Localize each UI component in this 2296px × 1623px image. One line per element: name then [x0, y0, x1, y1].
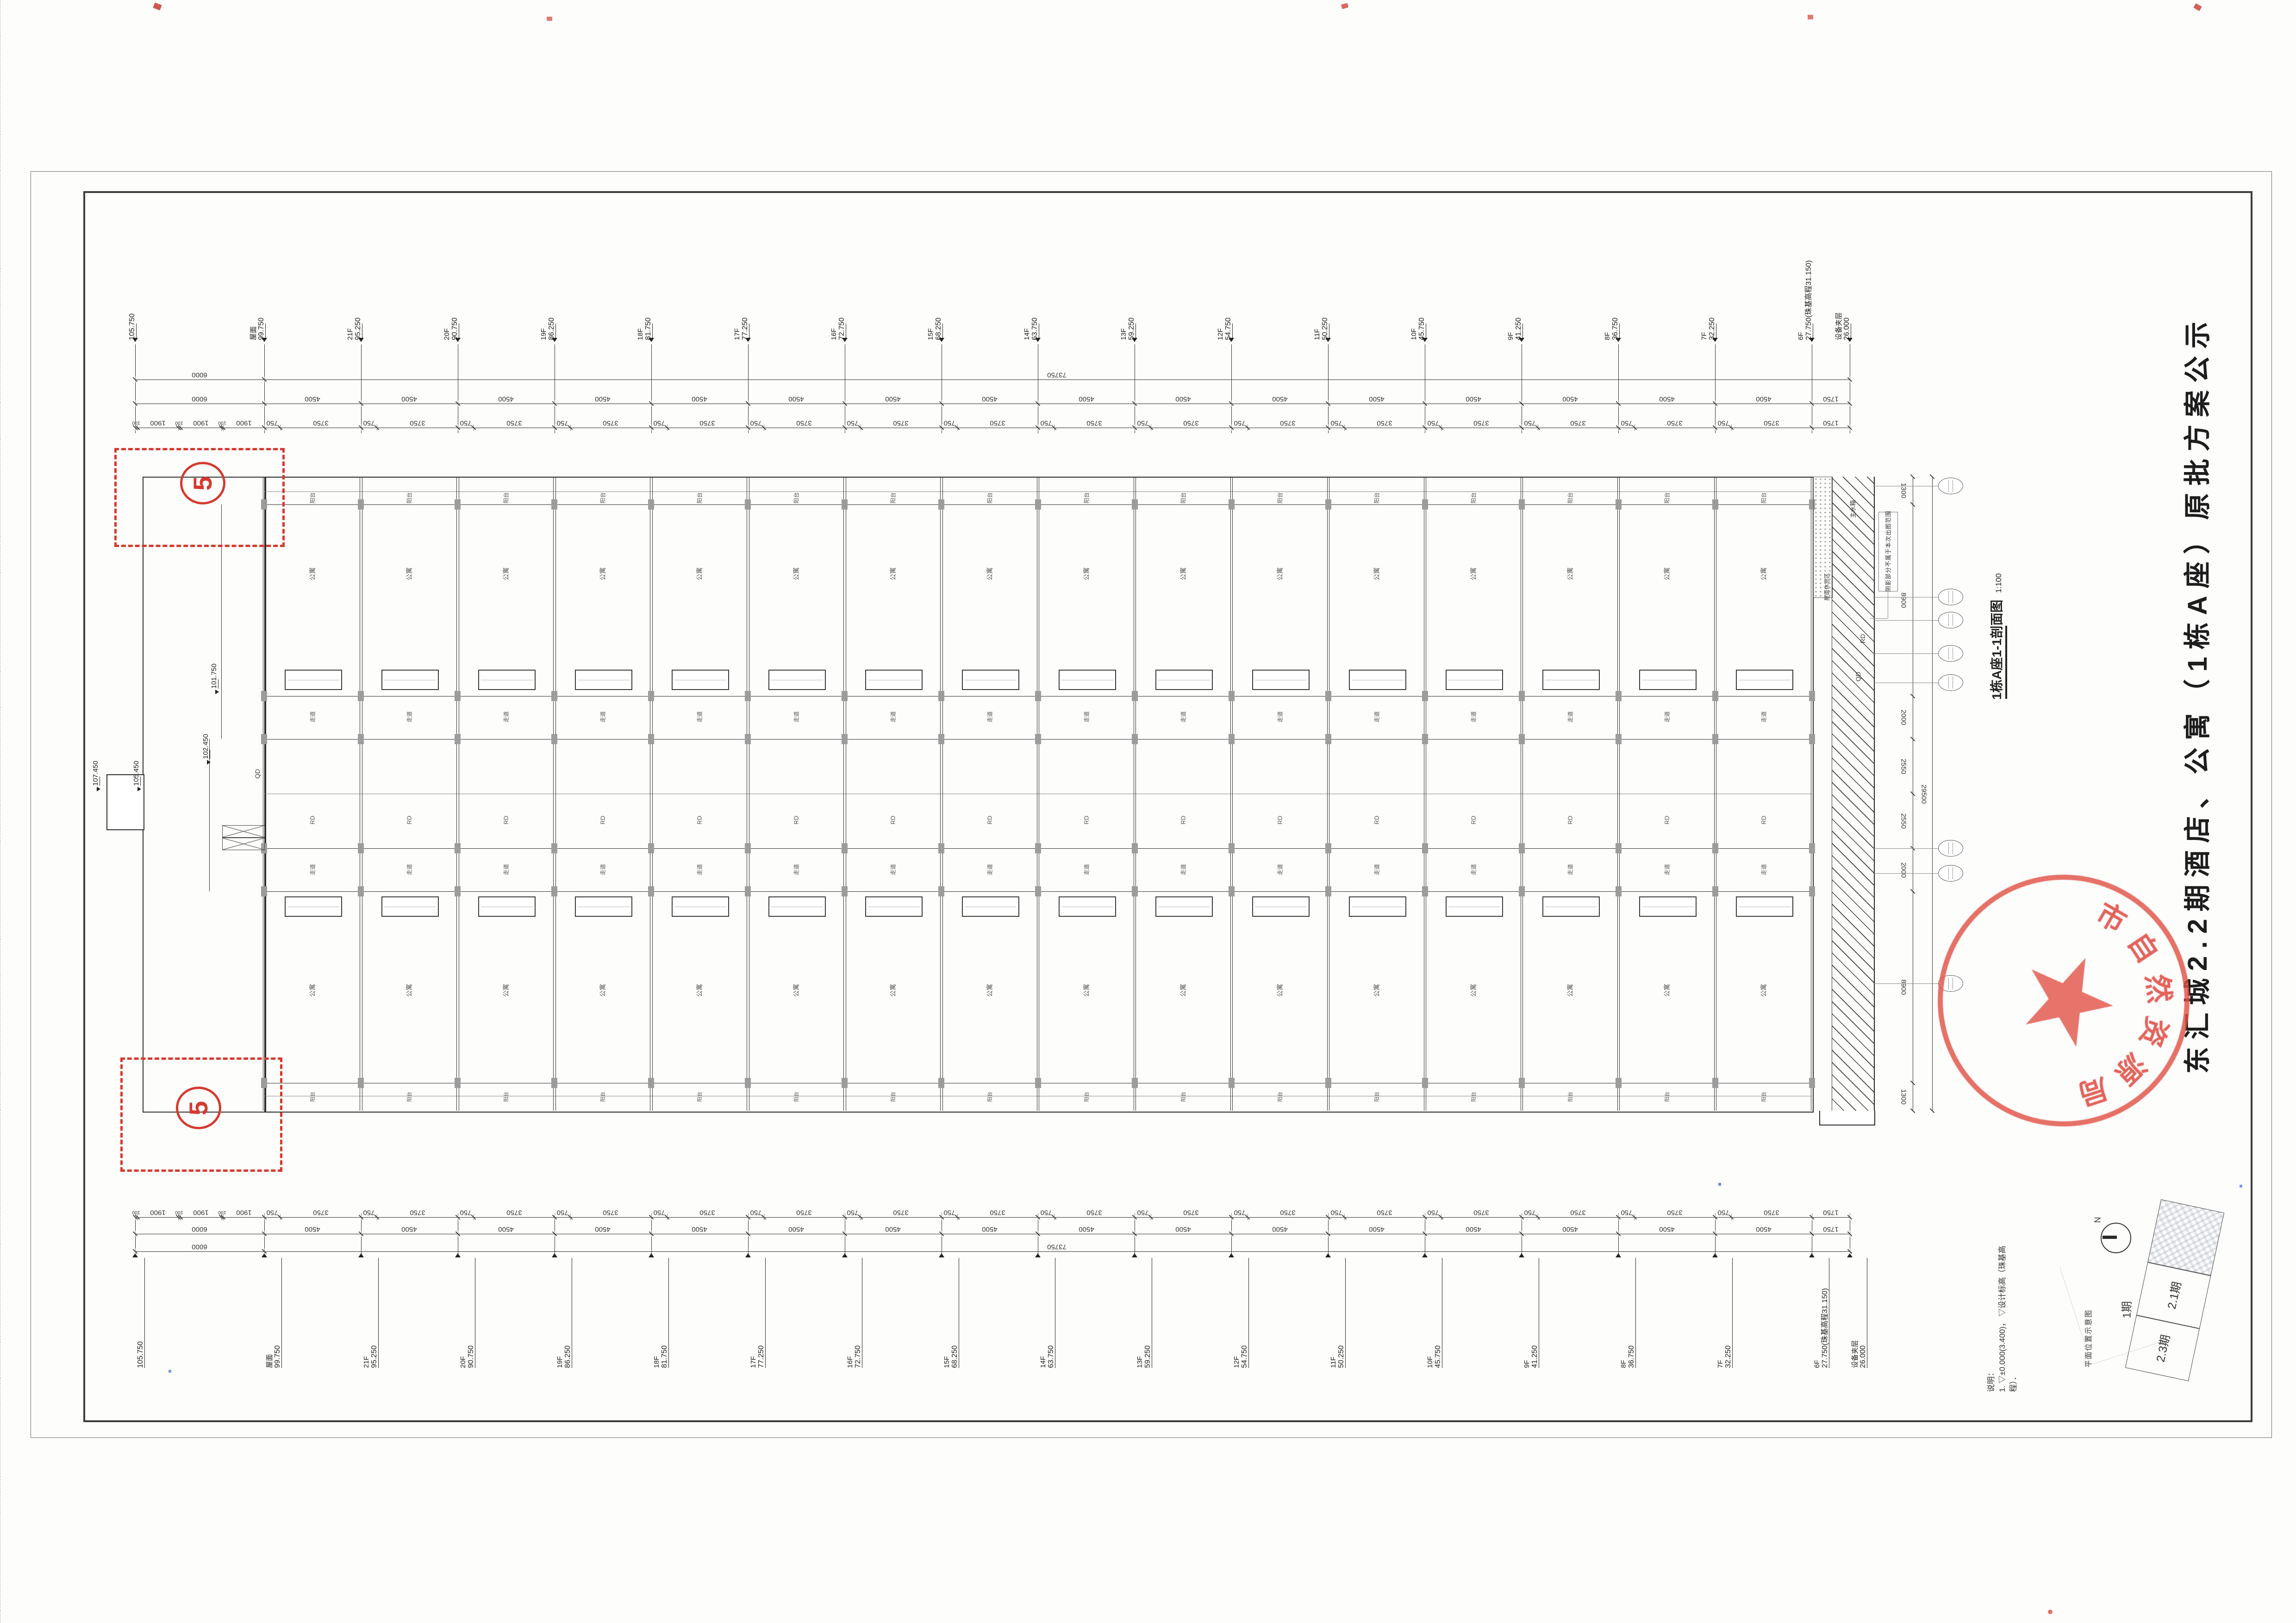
room-label: 走道: [889, 711, 897, 722]
level-leader: [1522, 344, 1522, 433]
extension-line: [0, 403, 0, 439]
room-label: 走道: [599, 864, 607, 875]
cross-dim-label: 8900: [1900, 979, 1908, 995]
dimension-label: 6000: [192, 1243, 207, 1251]
floor-level-label: 15F68.250: [943, 1258, 959, 1368]
dimension-label: 3750: [506, 1209, 522, 1217]
beam-cut: [455, 1078, 461, 1088]
level-leader: [845, 344, 845, 433]
level-flag-icon: [215, 690, 219, 694]
dimension-label: 750: [943, 1209, 955, 1217]
beam-cut: [1616, 734, 1622, 744]
window-symbol: [381, 896, 439, 917]
room-label: 走道: [1179, 864, 1187, 875]
room-label: 走道: [1566, 864, 1574, 875]
grid-bubble: [1938, 674, 1963, 691]
room-label: 阳台: [1373, 1092, 1380, 1102]
grid-bubble: [1938, 478, 1963, 494]
floor-level-label: 设备夹层26.000: [1511, 323, 1851, 340]
roof-level-label: 102.450: [0, 750, 210, 759]
level-leader: [1425, 344, 1425, 433]
dimension-label: 3750: [313, 419, 328, 427]
dimension-label: 750: [460, 419, 471, 427]
key-plan: N 2.1期 2.3期 1期 平面位置示意图: [2055, 1175, 2250, 1398]
extension-line: [0, 1110, 0, 1208]
floor-slab-line: [1329, 477, 1329, 1111]
level-flag-icon: [939, 1253, 944, 1257]
window-symbol: [1639, 896, 1697, 917]
cross-dim-label: 2000: [1900, 709, 1908, 725]
extension-line: [0, 805, 0, 841]
room-label: 走道: [696, 711, 704, 722]
dimension-label: 750: [653, 419, 665, 427]
beam-cut: [1809, 691, 1815, 701]
stamp-arc-text: 市自然资源局: [1921, 858, 2206, 1143]
room-label: 走道: [792, 864, 800, 875]
room-label: 公寓: [1759, 567, 1768, 580]
beam-cut: [1519, 886, 1525, 896]
dimension-label: 750: [750, 419, 761, 427]
level-flag-icon: [1519, 1253, 1524, 1257]
dimension-label: 3750: [893, 419, 909, 427]
room-label: 公寓: [1566, 567, 1575, 580]
floor-slab-line: [940, 477, 941, 1111]
dimension-label: 3750: [1571, 419, 1586, 427]
floor-level-label: 18F81.750: [653, 1258, 669, 1368]
bubble-leader: [1873, 486, 1939, 486]
floor-slab-line: [1811, 477, 1811, 1111]
floor-level-label: 7F32.250: [1716, 1258, 1733, 1368]
dimension-label: 6000: [192, 395, 207, 403]
grid-bubble: [1938, 589, 1963, 605]
stamp-arc-char: 自: [2120, 923, 2171, 970]
dimension-label: 73750: [1047, 1243, 1067, 1251]
bubble-leader: [1873, 683, 1939, 683]
dimension-label: 1750: [1823, 395, 1838, 403]
beam-cut: [745, 691, 751, 701]
dimension-label: 750: [1621, 419, 1632, 427]
dimension-label: 750: [267, 419, 278, 427]
roof-level-label: 101.750: [0, 679, 218, 689]
beam-cut: [455, 499, 461, 510]
level-flag-icon: [137, 787, 141, 791]
level-leader: [1618, 344, 1619, 433]
level-flag-icon: [97, 787, 100, 791]
dimension-label: 4500: [595, 1225, 610, 1233]
window-symbol: [285, 670, 342, 690]
room-label: RD: [309, 816, 316, 825]
room-label: 公寓: [1275, 567, 1285, 580]
beam-cut: [1616, 843, 1622, 853]
dimension-label: 4500: [982, 1225, 997, 1233]
room-label: 走道: [502, 711, 510, 722]
room-label: 阳台: [1082, 492, 1090, 504]
room-label: RD: [986, 816, 993, 825]
extension-line: [0, 439, 0, 537]
dimension-label: 750: [1330, 419, 1342, 427]
stamp-arc-char: 市: [2090, 890, 2136, 941]
dimension-label: 3750: [1474, 1209, 1489, 1217]
level-leader: [651, 344, 652, 433]
floor-slab-line: [362, 477, 362, 1111]
floor-slab-line: [843, 477, 844, 1111]
floor-slab-line: [1136, 477, 1136, 1111]
dimension-label: 1900: [150, 419, 165, 427]
dimension-label: 4500: [1466, 1225, 1481, 1233]
room-label: 公寓: [985, 567, 994, 580]
level-flag-icon: [1712, 1253, 1718, 1257]
level-leader: [555, 344, 555, 433]
beam-cut: [1132, 691, 1138, 701]
dim-line: [135, 404, 1850, 404]
floor-level-label: 设备夹层26.000: [1851, 1258, 1867, 1368]
bubble-leader: [1873, 983, 1939, 984]
room-label: 阳台: [986, 492, 993, 504]
beam-cut: [648, 734, 654, 744]
beam-cut: [1132, 734, 1138, 744]
beam-cut: [551, 734, 557, 744]
grid-bubble: [1938, 612, 1963, 628]
beam-cut: [1422, 691, 1428, 701]
room-label: 走道: [986, 864, 993, 875]
level-leader: [1231, 344, 1232, 433]
dim-line: [135, 1251, 1850, 1252]
room-label: RD: [696, 816, 703, 825]
window-symbol: [672, 896, 729, 917]
window-symbol: [1639, 670, 1697, 690]
room-label: 公寓: [792, 567, 801, 580]
cross-dim-label: 2550: [1900, 814, 1908, 829]
hatch-label: 主水箱: [1848, 500, 1857, 518]
beam-cut: [648, 499, 654, 510]
ground-hatch: [1832, 477, 1875, 1111]
beam-cut: [1325, 734, 1331, 744]
dimension-label: 750: [1330, 1209, 1342, 1217]
cross-dim-label: 2000: [1900, 862, 1908, 877]
floor-slab-line: [263, 477, 263, 1111]
room-label: 走道: [1663, 711, 1671, 722]
bubble-leader: [1873, 597, 1939, 597]
dimension-label: 6000: [192, 371, 207, 379]
floor-level-label: 屋面99.750: [266, 1258, 282, 1368]
dimension-label: 4500: [885, 395, 900, 403]
dimension-label: 750: [750, 1209, 761, 1217]
floor-slab-line: [1521, 477, 1521, 1111]
room-label: 公寓: [1469, 567, 1478, 580]
beam-cut: [1229, 499, 1235, 510]
room-label: 公寓: [405, 984, 414, 997]
room-label: 公寓: [1179, 984, 1188, 997]
beam-cut: [1809, 886, 1815, 896]
room-label: 走道: [599, 711, 607, 722]
room-label: 公寓: [1372, 567, 1381, 580]
beam-cut: [842, 843, 848, 853]
dimension-label: 4500: [692, 395, 707, 403]
room-label: 阳台: [406, 1092, 413, 1102]
beam-cut: [1712, 1078, 1718, 1088]
beam-cut: [745, 886, 751, 896]
beam-cut: [551, 843, 557, 853]
level-flag-icon: [842, 1253, 848, 1257]
room-label: 阳台: [696, 492, 704, 504]
room-label: 走道: [1082, 864, 1090, 875]
revision-cloud-number: 5: [176, 1087, 221, 1129]
window-symbol: [1155, 670, 1213, 690]
floor-slab-line: [1327, 477, 1328, 1111]
beam-cut: [1519, 691, 1525, 701]
room-label: 阳台: [1760, 1092, 1767, 1102]
dimension-label: 750: [267, 1209, 278, 1217]
room-label: RD: [1179, 816, 1186, 825]
dimension-label: 4500: [1756, 395, 1771, 403]
beam-cut: [358, 886, 364, 896]
window-symbol: [962, 896, 1019, 917]
dimension-label: 3750: [1087, 1209, 1102, 1217]
window-symbol: [575, 670, 632, 690]
window-symbol: [1446, 670, 1503, 690]
beam-cut: [938, 886, 944, 896]
bubble-leader: [1873, 873, 1939, 874]
dimension-label: 3750: [1280, 1209, 1296, 1217]
ramp-label: QD: [1854, 672, 1862, 682]
room-label: 走道: [1759, 864, 1767, 875]
level-leader: [1135, 344, 1135, 433]
room-label: 阳台: [1276, 492, 1284, 504]
room-label: 公寓: [888, 984, 898, 997]
dimension-label: 73750: [1047, 371, 1067, 379]
dimension-label: 750: [1524, 419, 1535, 427]
level-flag-icon: [552, 1253, 557, 1257]
floor-level-label: 105.750: [137, 1258, 145, 1368]
stamp-arc-char: 源: [2108, 1046, 2157, 1096]
level-flag-icon: [207, 760, 211, 765]
dimension-label: 750: [1717, 1209, 1729, 1217]
dimension-label: 3750: [410, 1209, 425, 1217]
dimension-label: 1900: [193, 419, 208, 427]
beam-cut: [261, 886, 267, 896]
room-label: 走道: [1759, 711, 1767, 722]
section-title-underline: [2005, 626, 2007, 699]
level-leader: [1812, 344, 1812, 433]
elevator-shaft-symbol: [222, 825, 265, 838]
beam-cut: [1132, 1078, 1138, 1088]
dimension-label: 3750: [990, 419, 1005, 427]
extension-line: [0, 537, 0, 573]
dimension-label: 750: [1137, 419, 1148, 427]
beam-cut: [1229, 886, 1235, 896]
dimension-label: 4500: [692, 1225, 707, 1233]
extension-line: [0, 671, 0, 707]
room-label: 阳台: [889, 492, 897, 504]
bubble-leader: [1873, 848, 1939, 849]
extension-line: [0, 305, 0, 403]
extension-line: [0, 1476, 0, 1512]
room-label: 走道: [792, 711, 800, 722]
dimension-label: 4500: [1369, 1225, 1384, 1233]
dimension-label: 750: [1234, 1209, 1245, 1217]
beam-cut: [648, 691, 654, 701]
beam-cut: [648, 1078, 654, 1088]
window-symbol: [1736, 896, 1793, 917]
room-label: 阳台: [309, 492, 317, 504]
room-label: RD: [1276, 816, 1283, 825]
beam-cut: [1422, 886, 1428, 896]
floor-slab-line: [1619, 477, 1620, 1111]
floor-slab-line: [1134, 477, 1134, 1111]
dimension-label: 750: [847, 419, 858, 427]
beam-cut: [455, 734, 461, 744]
level-flag-icon: [745, 1253, 751, 1257]
level-flag-icon: [455, 1253, 461, 1257]
dimension-label: 750: [653, 1209, 665, 1217]
room-label: RD: [406, 816, 413, 825]
room-label: 公寓: [1082, 567, 1091, 580]
floor-level-label: 16F72.750: [846, 1258, 862, 1368]
dimension-label: 3750: [893, 1209, 909, 1217]
floor-level-label: 12F54.750: [1233, 1258, 1249, 1368]
level-leader: [1850, 344, 1850, 433]
dimension-label: 3750: [990, 1209, 1005, 1217]
roof-structure-outline: [143, 477, 266, 1113]
floor-slab-line: [1039, 477, 1039, 1111]
beam-cut: [358, 499, 364, 510]
window-symbol: [381, 670, 439, 690]
extension-line: [0, 170, 0, 268]
room-label: 走道: [1276, 711, 1284, 722]
window-symbol: [1349, 896, 1406, 917]
room-label: 阳台: [599, 492, 607, 504]
dimension-label: 1750: [1823, 1225, 1838, 1233]
level-leader: [1038, 344, 1038, 433]
beam-cut: [1422, 1078, 1428, 1088]
shaft-label: QD: [254, 769, 261, 779]
dimension-label: 3750: [1280, 419, 1296, 427]
floor-slab-line: [456, 477, 457, 1111]
room-label: 走道: [406, 711, 413, 722]
beam-cut: [938, 734, 944, 744]
room-label: 公寓: [792, 984, 801, 997]
room-label: 公寓: [1759, 984, 1768, 997]
floor-slab-line: [1037, 477, 1037, 1111]
beam-cut: [842, 691, 848, 701]
window-symbol: [1446, 896, 1503, 917]
room-label: 走道: [889, 864, 897, 875]
beam-cut: [551, 886, 557, 896]
beam-cut: [1132, 886, 1138, 896]
floor-slab-line: [942, 477, 943, 1111]
beam-cut: [261, 734, 267, 744]
window-symbol: [768, 670, 826, 690]
dimension-label: 750: [363, 419, 375, 427]
dimension-label: 4500: [788, 395, 804, 403]
floor-level-label: 14F63.750: [1039, 1258, 1055, 1368]
floor-slab-line: [265, 477, 266, 1111]
beam-cut: [648, 886, 654, 896]
window-symbol: [768, 896, 826, 917]
floor-level-label: 17F77.250: [749, 1258, 766, 1368]
building-section-drawing: 阳台公寓走道RD走道公寓阳台阳台公寓走道RD走道公寓阳台阳台公寓走道RD走道公寓…: [0, 0, 2296, 1623]
beam-cut: [1132, 843, 1138, 853]
cross-dim-label: 8900: [1900, 592, 1908, 608]
beam-cut: [745, 734, 751, 744]
room-label: 阳台: [1276, 1092, 1284, 1102]
beam-cut: [1325, 843, 1331, 853]
dimension-label: 750: [1427, 1209, 1439, 1217]
room-label: RD: [1373, 816, 1380, 825]
level-flag-icon: [1616, 1253, 1621, 1257]
official-stamp: ★ 市自然资源局: [1921, 858, 2206, 1143]
north-label: N: [2093, 1217, 2103, 1223]
cross-dim-label: 1300: [1900, 1089, 1908, 1104]
beam-cut: [1325, 886, 1331, 896]
beam-cut: [1229, 843, 1235, 853]
beam-cut: [1519, 843, 1525, 853]
dimension-label: 3750: [1764, 1209, 1779, 1217]
floor-slab-line: [1714, 477, 1715, 1111]
level-leader: [942, 344, 942, 433]
beam-cut: [1519, 499, 1525, 510]
window-symbol: [1542, 670, 1600, 690]
room-label: 走道: [309, 864, 317, 875]
room-label: 走道: [502, 864, 510, 875]
window-symbol: [478, 896, 536, 917]
beam-cut: [1035, 843, 1041, 853]
beam-cut: [358, 1078, 364, 1088]
dimension-label: 3750: [1764, 419, 1779, 427]
level-leader: [1328, 344, 1329, 433]
beam-cut: [745, 499, 751, 510]
ramp-label: RD: [1859, 634, 1866, 643]
beam-cut: [842, 886, 848, 896]
dimension-label: 3750: [700, 1209, 715, 1217]
beam-cut: [938, 691, 944, 701]
window-symbol: [1252, 670, 1310, 690]
floor-slab-line: [459, 477, 459, 1111]
beam-cut: [1229, 734, 1235, 744]
floor-slab-line: [846, 477, 846, 1111]
beam-cut: [1519, 734, 1525, 744]
room-label: 公寓: [1469, 984, 1478, 997]
dimension-label: 4500: [982, 395, 997, 403]
extension-line: [0, 573, 0, 671]
level-flag-icon: [1325, 1253, 1331, 1257]
room-label: 阳台: [1373, 492, 1380, 504]
cross-dim-label: 2550: [1900, 759, 1908, 774]
room-label: 走道: [1276, 864, 1284, 875]
beam-cut: [1712, 499, 1718, 510]
floor-slab-line: [650, 477, 650, 1111]
room-label: RD: [1760, 816, 1767, 825]
floor-slab-line: [553, 477, 554, 1111]
scan-mark-blue: [168, 1370, 171, 1373]
window-symbol: [1736, 670, 1793, 690]
room-label: 走道: [1469, 864, 1477, 875]
dimension-label: 4500: [1369, 395, 1384, 403]
dimension-label: 4500: [401, 395, 417, 403]
beam-cut: [1035, 691, 1041, 701]
dimension-label: 3750: [1377, 419, 1392, 427]
room-label: 公寓: [308, 984, 317, 997]
beam-cut: [842, 1078, 848, 1088]
section-scale: 1:100: [1994, 573, 2003, 593]
extension-line: [0, 134, 0, 170]
floor-slab-line: [360, 477, 360, 1111]
beam-cut: [358, 691, 364, 701]
dimension-label: 750: [363, 1209, 375, 1217]
beam-cut: [1422, 734, 1428, 744]
dimension-label: 750: [556, 419, 568, 427]
dim-line: [135, 428, 1850, 428]
